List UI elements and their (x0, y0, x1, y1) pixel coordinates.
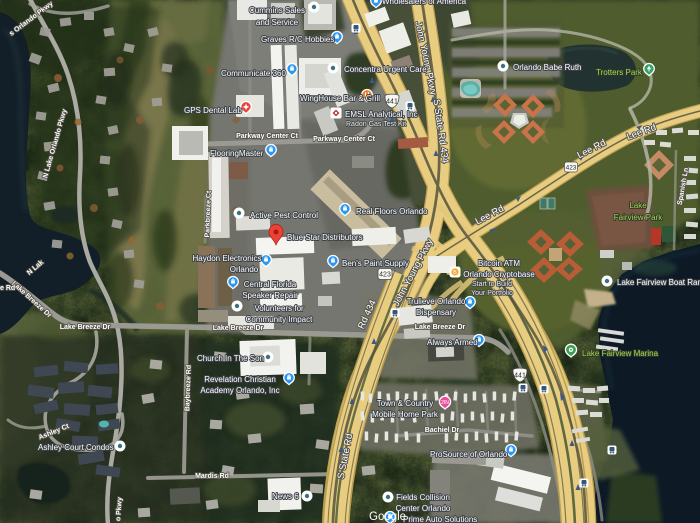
svg-text:Radon Gas Test Kit: Radon Gas Test Kit (346, 121, 406, 128)
svg-text:FlooringMaster: FlooringMaster (210, 149, 264, 158)
svg-text:Prime Auto Solutions: Prime Auto Solutions (403, 515, 477, 523)
svg-text:Graves R/C Hobbies: Graves R/C Hobbies (261, 35, 334, 44)
svg-text:Mobile Home Park: Mobile Home Park (372, 410, 439, 419)
svg-text:Active Pest Control: Active Pest Control (250, 211, 318, 220)
svg-text:Lake Fairview Marina: Lake Fairview Marina (582, 349, 659, 358)
svg-text:441: 441 (386, 99, 398, 106)
svg-text:Orlando Cryptobase: Orlando Cryptobase (463, 270, 535, 279)
svg-text:2IN: 2IN (441, 400, 449, 406)
svg-text:Cummins Sales: Cummins Sales (249, 6, 305, 15)
svg-text:WingHouse Bar & Grill: WingHouse Bar & Grill (300, 94, 380, 103)
svg-text:Parkway Center Ct: Parkway Center Ct (236, 133, 299, 140)
svg-text:Speaker Repair: Speaker Repair (242, 291, 298, 300)
svg-text:Volunteers for: Volunteers for (254, 304, 304, 313)
svg-text:ProSource of Orlando: ProSource of Orlando (430, 450, 508, 459)
svg-text:Central Florida: Central Florida (244, 280, 297, 289)
svg-text:Google: Google (369, 511, 406, 523)
svg-text:Town & Country: Town & Country (377, 399, 433, 408)
svg-text:Always Armed: Always Armed (427, 338, 478, 347)
svg-text:Academy Orlando, Inc: Academy Orlando, Inc (200, 386, 279, 395)
svg-text:News 6: News 6 (272, 492, 299, 501)
svg-text:Bitcoin ATM: Bitcoin ATM (478, 259, 520, 268)
svg-text:Revelation Christian: Revelation Christian (204, 375, 276, 384)
svg-text:Dispensary: Dispensary (416, 308, 456, 317)
svg-text:Orlando: Orlando (230, 265, 259, 274)
svg-text:Trulieve Orlando: Trulieve Orlando (407, 297, 466, 306)
svg-text:Wholesalers of America: Wholesalers of America (382, 0, 467, 6)
svg-text:441: 441 (514, 373, 526, 380)
svg-text:Parkway Center Ct: Parkway Center Ct (313, 136, 376, 143)
svg-text:GPS Dental Lab: GPS Dental Lab (184, 106, 242, 115)
svg-text:Community Impact: Community Impact (246, 315, 313, 324)
svg-text:Orlando Babe Ruth: Orlando Babe Ruth (513, 63, 582, 72)
svg-text:Communicate 360: Communicate 360 (221, 69, 286, 78)
svg-text:Bachiel Dr: Bachiel Dr (425, 427, 460, 434)
svg-text:Ashley Court Condos: Ashley Court Condos (38, 443, 114, 452)
svg-text:B: B (453, 270, 457, 276)
svg-text:EMSL Analytical, Inc: EMSL Analytical, Inc (345, 110, 418, 119)
svg-text:Fairview Park: Fairview Park (614, 213, 663, 222)
svg-text:and Service: and Service (256, 18, 299, 27)
svg-text:Trotters Park: Trotters Park (596, 68, 643, 77)
svg-text:Ben's Paint Supply: Ben's Paint Supply (342, 259, 409, 268)
svg-text:e Rd: e Rd (0, 285, 15, 292)
svg-text:Lake Fairview Boat Ramp: Lake Fairview Boat Ramp (617, 278, 700, 287)
svg-text:Fields Collision: Fields Collision (396, 493, 450, 502)
svg-text:423: 423 (566, 164, 577, 171)
svg-text:Blue Star Distributors: Blue Star Distributors (287, 233, 363, 242)
svg-text:Lake: Lake (629, 201, 647, 210)
svg-text:Mardis Rd: Mardis Rd (195, 473, 229, 480)
svg-text:Lake Breeze Dr: Lake Breeze Dr (213, 325, 264, 332)
svg-text:Concentra Urgent Care: Concentra Urgent Care (344, 65, 427, 74)
svg-text:Lake Breeze Dr: Lake Breeze Dr (415, 324, 466, 331)
svg-text:Your Portfolio: Your Portfolio (471, 290, 513, 297)
svg-text:Start to Build: Start to Build (472, 281, 512, 288)
svg-text:Real Floors Orlando: Real Floors Orlando (356, 207, 428, 216)
svg-text:Haydon Electronics: Haydon Electronics (193, 254, 262, 263)
svg-text:Church In The Son: Church In The Son (197, 354, 264, 363)
svg-text:Lake Breeze Dr: Lake Breeze Dr (60, 324, 111, 331)
svg-text:423: 423 (379, 272, 391, 279)
